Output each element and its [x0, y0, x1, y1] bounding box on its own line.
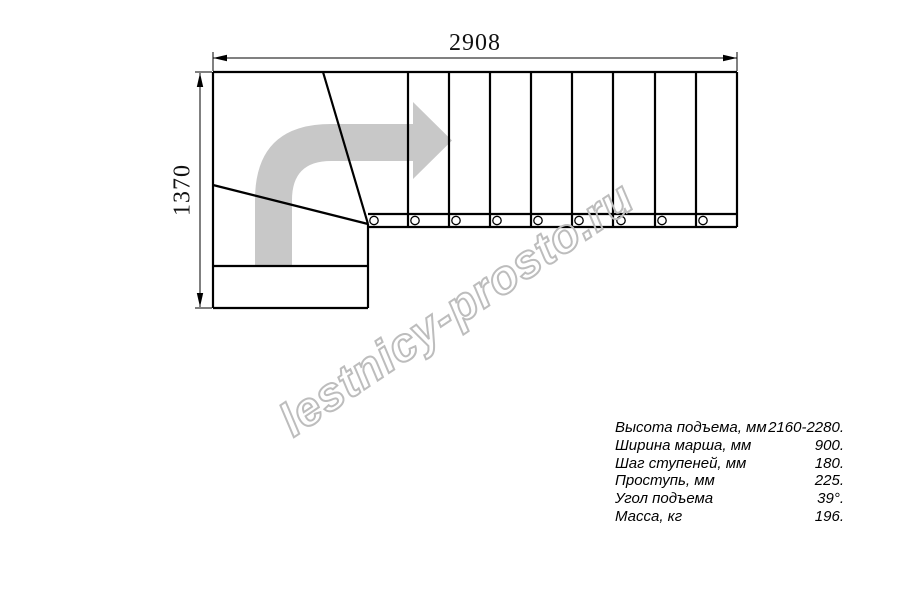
spec-label: Шаг ступеней, мм — [615, 455, 746, 473]
spec-value: 900. — [815, 437, 844, 455]
spec-label: Масса, кг — [615, 508, 682, 526]
stringer-band-lines — [368, 214, 737, 227]
spec-row-flight-width: Ширина марша, мм 900. — [615, 437, 844, 455]
spec-label: Проступь, мм — [615, 472, 715, 490]
spec-table: Высота подъема, мм 2160-2280. Ширина мар… — [615, 419, 844, 526]
spec-row-tread: Проступь, мм 225. — [615, 472, 844, 490]
spec-row-height: Высота подъема, мм 2160-2280. — [615, 419, 844, 437]
spec-row-mass: Масса, кг 196. — [615, 508, 844, 526]
spec-value: 180. — [815, 455, 844, 473]
dim-arrow-up-icon — [197, 73, 203, 87]
spec-value: 196. — [815, 508, 844, 526]
spec-label: Высота подъема, мм — [615, 419, 767, 437]
baluster-circles — [370, 216, 707, 224]
direction-arrow-icon — [255, 102, 452, 266]
spec-label: Угол подъема — [615, 490, 713, 508]
dimension-label-height: 1370 — [170, 164, 197, 216]
spec-label: Ширина марша, мм — [615, 437, 751, 455]
staircase-drawing-page: 2908 1370 lestnicy-prosto.ru Высота подъ… — [0, 0, 900, 600]
step-divider-lines — [408, 72, 696, 227]
spec-row-angle: Угол подъема 39°. — [615, 490, 844, 508]
spec-row-step-rise: Шаг ступеней, мм 180. — [615, 455, 844, 473]
spec-value: 2160-2280. — [768, 419, 844, 437]
spec-value: 225. — [815, 472, 844, 490]
dim-arrow-down-icon — [197, 293, 203, 307]
dimension-label-width: 2908 — [213, 30, 737, 57]
spec-value: 39°. — [817, 490, 844, 508]
